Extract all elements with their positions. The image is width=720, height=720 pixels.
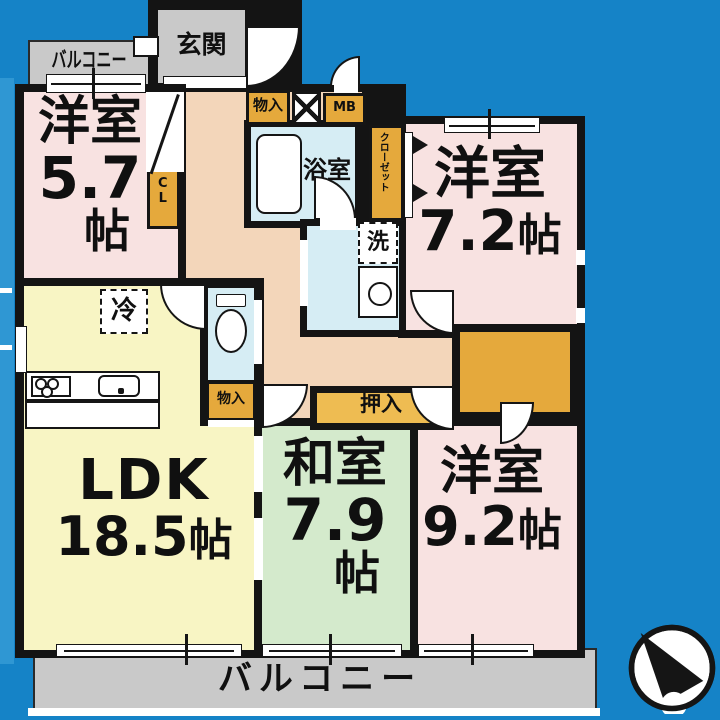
room-size: 9.2	[422, 495, 518, 558]
window	[444, 117, 540, 133]
room-size: 7.9	[258, 491, 412, 550]
toilet-bowl-icon	[215, 309, 247, 353]
stove-burner	[41, 386, 53, 398]
room-name: 洋室	[402, 446, 582, 499]
floor-plan: バルコニー バルコニー 玄関 物入 物入 MB 浴室 クローゼット	[0, 0, 720, 720]
room-washitsu-label: 和室 7.9 帖	[258, 438, 412, 597]
meter-box-label: MB	[323, 101, 366, 114]
service-door-arc	[330, 56, 360, 87]
room-unit: 帖	[189, 515, 233, 566]
window	[46, 74, 146, 93]
door-gap	[320, 218, 356, 230]
window-tick	[185, 634, 188, 665]
balcony-top-label: バルコニー	[42, 50, 136, 71]
storage-top-label: 物入	[246, 98, 290, 113]
room-size: 5.7	[14, 149, 166, 208]
room-name: LDK	[28, 452, 260, 509]
room-western-9-2-label: 洋室 9.2帖	[402, 446, 582, 554]
balcony-bottom-label: バルコニー	[180, 662, 460, 697]
balcony-base-line	[28, 708, 600, 716]
room-western-5-7-label: 洋室 5.7 帖	[14, 96, 166, 255]
wall-tick	[0, 288, 12, 293]
window	[15, 326, 27, 373]
room-ldk-label: LDK 18.5帖	[28, 452, 260, 564]
room-size: 18.5	[55, 505, 188, 568]
sliding-door	[418, 644, 534, 657]
left-railing-strip	[0, 78, 14, 664]
room-unit: 帖	[518, 505, 562, 556]
sink-drain	[118, 388, 124, 394]
door-gap	[300, 240, 308, 306]
bathtub-icon	[256, 134, 302, 214]
closet-vertical-label: クローゼット	[377, 132, 387, 192]
room-unit: 帖	[302, 550, 412, 597]
kitchen-counter-divider	[27, 399, 158, 403]
window-tick	[471, 634, 474, 665]
room-western-7-2-label: 洋室 7.2帖	[396, 146, 584, 260]
room-unit: 帖	[48, 208, 166, 255]
door-gap	[254, 300, 262, 364]
storage-mid-label: 物入	[207, 392, 255, 406]
window-tick	[329, 634, 332, 665]
door-gap	[208, 420, 254, 427]
sliding-door	[56, 644, 242, 657]
sliding-door	[262, 644, 402, 657]
window-tick	[488, 109, 491, 139]
entrance-label: 玄関	[158, 32, 245, 58]
washbasin-bowl	[368, 282, 392, 306]
room-name: 和室	[258, 438, 412, 491]
room-name: 洋室	[14, 96, 166, 149]
toilet-icon	[216, 294, 246, 307]
room-unit: 帖	[518, 210, 562, 261]
wall-tick	[576, 308, 585, 323]
pipe-shaft-box	[292, 91, 321, 125]
room-size: 7.2	[418, 199, 517, 264]
laundry-box: 洗	[358, 222, 398, 264]
compass-north-icon	[626, 622, 718, 714]
balcony-step-box	[133, 36, 159, 57]
room-name: 洋室	[396, 146, 584, 203]
wall-tick	[0, 345, 12, 350]
fridge-box: 冷	[100, 289, 148, 334]
